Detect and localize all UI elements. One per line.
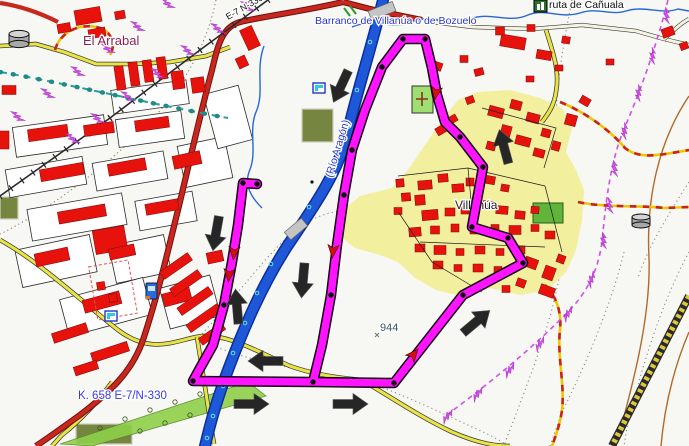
lightning-bolt-icon (70, 62, 86, 80)
building (561, 36, 570, 44)
flag-icon (105, 311, 117, 321)
building (509, 226, 521, 235)
track-waypoint[interactable] (341, 192, 346, 197)
track-waypoint[interactable] (379, 64, 384, 69)
cave-icon (534, 0, 547, 12)
building (206, 250, 224, 264)
lightning-bolt-icon (662, 7, 673, 24)
building (527, 25, 535, 32)
building (114, 65, 126, 90)
lightning-bolt-icon (160, 0, 176, 12)
label-spot-height: 944 (380, 322, 398, 334)
fuel-station-icon (146, 283, 157, 299)
lightning-bolt-icon (439, 408, 457, 424)
pr-trail (578, 202, 689, 208)
cemetery (412, 86, 433, 113)
building (456, 249, 464, 256)
track-waypoint[interactable] (469, 224, 474, 229)
building (474, 67, 485, 76)
building (90, 341, 129, 362)
track-waypoint[interactable] (310, 379, 315, 384)
track-waypoint[interactable] (328, 292, 333, 297)
lightning-bolt-icon (469, 386, 486, 402)
building (415, 195, 426, 206)
direction-arrow (333, 394, 368, 415)
tree-mark (148, 408, 152, 412)
building (496, 249, 504, 256)
lightning-bolt-icon (40, 84, 56, 102)
lightning-bolt-icon (647, 47, 659, 65)
path-dotted (362, 380, 508, 446)
label-el-arrabal: El Arrabal (83, 33, 139, 48)
building (555, 65, 563, 71)
building (431, 226, 440, 234)
railway-southeast (612, 296, 689, 446)
tree-mark (198, 392, 202, 396)
building (96, 281, 105, 290)
building (401, 193, 411, 202)
track-waypoint[interactable] (349, 147, 354, 152)
lightning-bolt-icon (599, 232, 610, 249)
lightning-bolt-icon (10, 107, 26, 125)
water-tank-icon (9, 30, 29, 47)
track-waypoint[interactable] (422, 36, 427, 41)
tree-mark (123, 417, 127, 421)
label-km-marker: K. 658 E-7/N-330 (78, 390, 167, 402)
building (500, 34, 527, 50)
building (515, 211, 526, 220)
building (108, 293, 117, 302)
building (2, 86, 16, 95)
building (579, 95, 592, 107)
building (409, 227, 422, 237)
path-dotted (638, 182, 689, 278)
lightning-bolt-icon (584, 271, 599, 289)
spot-point (310, 180, 313, 183)
building (536, 49, 552, 60)
building (475, 246, 485, 254)
direction-arrow (203, 214, 230, 252)
building (500, 184, 509, 192)
building (445, 208, 455, 216)
track-waypoint[interactable] (480, 164, 485, 169)
direction-arrow (456, 302, 496, 341)
building (531, 206, 540, 214)
building (191, 77, 206, 94)
building (460, 56, 468, 63)
track-waypoint[interactable] (254, 181, 259, 186)
track-waypoint[interactable] (240, 180, 245, 185)
building (171, 70, 185, 89)
building (531, 225, 539, 232)
building (526, 76, 534, 82)
railway-tick (53, 154, 57, 160)
track-waypoint[interactable] (400, 36, 405, 41)
building (434, 246, 446, 255)
building (661, 26, 675, 39)
building (239, 25, 260, 50)
water-tank-icon (632, 214, 650, 228)
track-waypoint[interactable] (520, 260, 525, 265)
spot-mark (375, 333, 379, 337)
track-waypoint[interactable] (505, 235, 510, 240)
building (415, 244, 425, 252)
building (422, 209, 439, 220)
street-blocks-layer (5, 80, 252, 337)
building (452, 183, 465, 192)
topo-map-canvas[interactable]: El Arrabal Barranco de Villanúa o de Boz… (0, 0, 689, 446)
building (606, 59, 614, 65)
building (538, 284, 556, 299)
building (496, 27, 505, 35)
building (114, 10, 125, 20)
building (438, 174, 449, 183)
building (396, 179, 405, 188)
football-field (302, 109, 333, 142)
building (454, 265, 462, 272)
flag-icon (313, 83, 325, 93)
track-waypoint[interactable] (190, 378, 195, 383)
track-waypoint[interactable] (457, 134, 462, 139)
building (57, 22, 71, 33)
building (496, 205, 509, 214)
building (451, 224, 459, 232)
building (418, 180, 433, 190)
tree-mark (173, 400, 177, 404)
lightning-bolt-icon (633, 84, 646, 102)
map-svg[interactable]: El Arrabal Barranco de Villanúa o de Boz… (0, 0, 689, 446)
minor-road (362, 380, 510, 446)
track-waypoint[interactable] (391, 380, 396, 385)
direction-arrow (291, 262, 315, 299)
green-plot (0, 197, 18, 219)
building (0, 131, 9, 149)
path-dotted (624, 252, 689, 446)
building (473, 264, 483, 272)
building (74, 6, 102, 25)
building (502, 286, 510, 293)
building (235, 55, 249, 69)
building (545, 231, 555, 239)
building (73, 360, 99, 376)
lightning-bolt-icon (560, 305, 577, 322)
building (466, 178, 474, 186)
label-gruta: ruta de Cañuala (549, 0, 624, 11)
label-barranco: Barranco de Villanúa o de Bozuelo (315, 15, 477, 27)
track-waypoint[interactable] (460, 292, 465, 297)
building (394, 208, 402, 215)
road-fragment (0, 3, 58, 22)
